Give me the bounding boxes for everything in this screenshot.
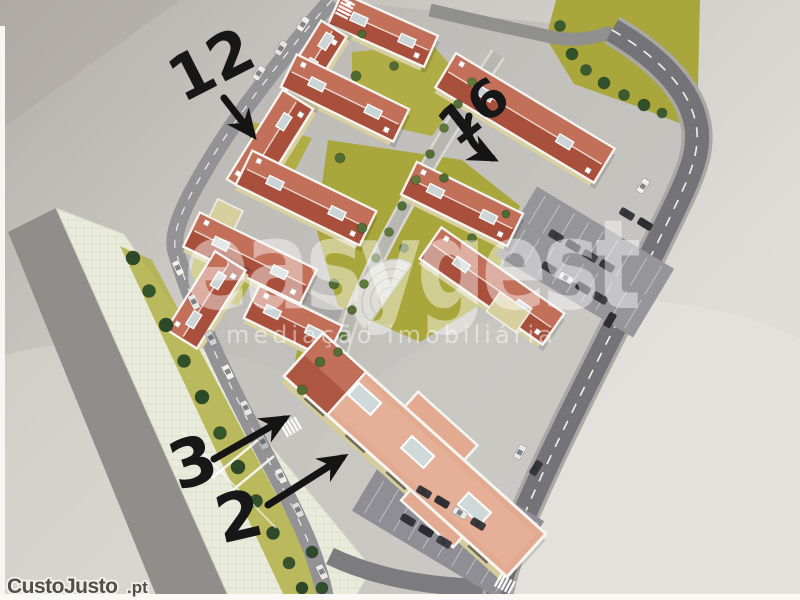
custojusto-logo-tld: .pt: [127, 578, 148, 597]
custojusto-logo-name: CustoJusto: [7, 575, 118, 598]
listing-photo-3d-site-render: CustoJusto .pt easygest mediação imobili…: [0, 0, 800, 600]
site-plan-render: CustoJusto .pt: [0, 0, 800, 600]
custojusto-logo: CustoJusto .pt: [7, 575, 148, 598]
